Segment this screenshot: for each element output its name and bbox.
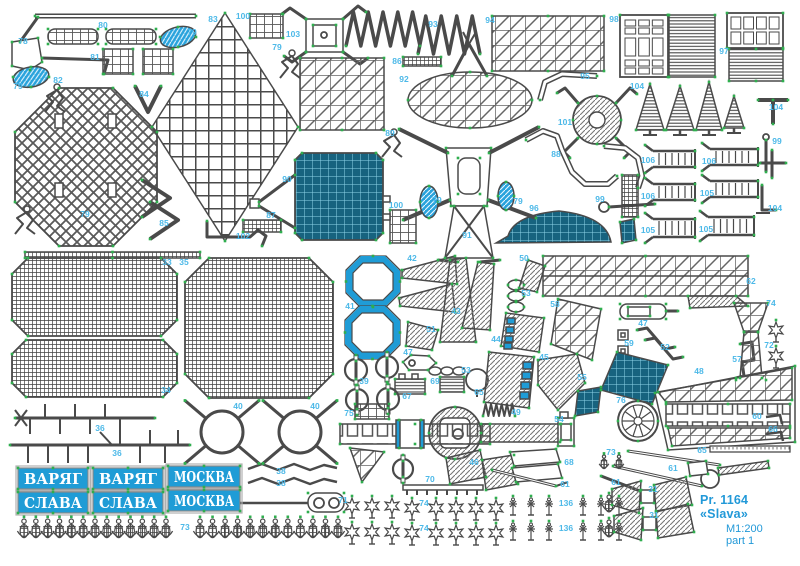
part-number-label: 53 (521, 288, 531, 298)
part-shape (295, 153, 383, 240)
attachment-dot (87, 512, 90, 515)
attachment-dot (12, 76, 15, 79)
attachment-dot (52, 512, 55, 515)
part-number-label: 86 (392, 56, 402, 66)
part-shape (108, 183, 116, 197)
attachment-dot (105, 43, 108, 46)
attachment-dot (507, 295, 510, 298)
attachment-dot (355, 354, 358, 357)
attachment-dot (772, 99, 775, 102)
attachment-dot (747, 305, 750, 308)
attachment-dot (497, 195, 500, 198)
attachment-dot (46, 516, 49, 519)
part-number-label: 46 (469, 457, 479, 467)
attachment-dot (399, 280, 402, 283)
attachment-dot (701, 142, 704, 145)
part-shape (429, 500, 443, 516)
attachment-dot (685, 476, 688, 479)
attachment-dot (718, 474, 721, 477)
attachment-dot (419, 45, 422, 48)
attachment-dot (665, 403, 668, 406)
attachment-dot (637, 187, 640, 190)
attachment-dot (305, 51, 308, 54)
attachment-dot (694, 183, 697, 186)
attachment-dot (485, 489, 488, 492)
part-number-label: 36 (112, 448, 122, 458)
attachment-dot (206, 220, 209, 223)
attachment-dot (341, 129, 344, 132)
part-number-label: 106 (702, 156, 716, 166)
attachment-dot (203, 489, 206, 492)
attachment-dot (761, 377, 764, 380)
attachment-dot (383, 57, 386, 60)
attachment-dot (224, 516, 227, 519)
attachment-dot (34, 15, 37, 18)
attachment-dot (453, 205, 456, 208)
attachment-dot (600, 389, 603, 392)
parts-sheet: ВАРЯГВАРЯГМОСКВАСЛАВАСЛАВАМОСКВА 7880818… (0, 0, 800, 566)
attachment-dot (479, 157, 482, 160)
attachment-dot (499, 259, 502, 262)
part-number-label: 136 (559, 498, 573, 508)
attachment-dot (184, 399, 187, 402)
attachment-dot (644, 205, 647, 208)
attachment-dot (584, 382, 587, 385)
part-shape (523, 362, 532, 369)
attachment-dot (177, 26, 180, 29)
part-number-label: 50 (519, 253, 529, 263)
part-shape (248, 478, 337, 484)
attachment-dot (480, 441, 483, 444)
nameplate-text: ВАРЯГ (99, 470, 158, 488)
nameplate-text: МОСКВА (174, 468, 235, 486)
attachment-dot (640, 502, 643, 505)
part-number-label: 45 (539, 352, 549, 362)
attachment-dot (344, 331, 347, 334)
attachment-dot (52, 467, 55, 470)
attachment-dot (160, 335, 163, 338)
attachment-dot (154, 417, 157, 420)
attachment-dot (336, 399, 339, 402)
attachment-dot (570, 439, 573, 442)
attachment-dot (600, 386, 603, 389)
part-shape (152, 519, 156, 523)
part-number-label: 34 (161, 385, 171, 395)
attachment-dot (239, 489, 242, 492)
attachment-dot (87, 491, 90, 494)
parts-drawing: ВАРЯГВАРЯГМОСКВАСЛАВАСЛАВАМОСКВА 7880818… (0, 0, 800, 566)
attachment-dot (674, 346, 677, 349)
part-shape (403, 485, 483, 490)
attachment-dot (591, 359, 594, 362)
part-shape (390, 210, 416, 243)
attachment-dot (644, 242, 647, 245)
part-shape (128, 519, 132, 523)
attachment-dot (127, 512, 130, 515)
attachment-dot (162, 467, 165, 470)
attachment-dot (375, 152, 378, 155)
attachment-dot (727, 425, 730, 428)
attachment-dot (657, 537, 660, 540)
attachment-dot (387, 383, 390, 386)
attachment-dot (87, 488, 90, 491)
attachment-dot (402, 482, 405, 485)
attachment-dot (127, 488, 130, 491)
attachment-dot (616, 351, 619, 354)
part-shape (250, 14, 283, 38)
attachment-dot (176, 273, 179, 276)
attachment-dot (156, 131, 159, 134)
attachment-dot (92, 467, 95, 470)
attachment-dot (444, 257, 447, 260)
attachment-dot (371, 521, 374, 524)
attachment-dot (782, 48, 785, 51)
part-shape (201, 411, 243, 453)
title-block: Pr. 1164 «Slava» M1:200 part 1 (700, 493, 796, 547)
attachment-dot (411, 497, 414, 500)
attachment-dot (619, 14, 622, 17)
attachment-dot (258, 462, 261, 465)
part-number-label: 35 (179, 257, 189, 267)
attachment-dot (199, 516, 202, 519)
part-shape (383, 214, 390, 220)
attachment-dot (699, 210, 702, 213)
attachment-dot (398, 297, 401, 300)
attachment-dot (512, 495, 515, 498)
attachment-dot (386, 351, 389, 354)
attachment-dot (461, 327, 464, 330)
attachment-dot (465, 257, 468, 260)
attachment-dot (382, 159, 385, 162)
attachment-dot (455, 522, 458, 525)
part-number-label: 94 (485, 15, 495, 25)
attachment-dot (407, 99, 410, 102)
attachment-dot (771, 149, 774, 152)
attachment-dot (714, 14, 717, 17)
attachment-dot (671, 445, 674, 448)
part-shape (505, 336, 513, 342)
attachment-dot (621, 216, 624, 219)
attachment-dot (399, 305, 402, 308)
attachment-dot (627, 450, 630, 453)
attachment-dot (177, 46, 180, 49)
part-shape (530, 523, 533, 526)
attachment-dot (649, 83, 652, 86)
attachment-dot (58, 516, 61, 519)
attachment-dot (439, 391, 442, 394)
part-number-label: 79 (13, 81, 23, 91)
attachment-dot (102, 73, 105, 76)
part-number-label: 93 (428, 19, 438, 29)
attachment-dot (280, 231, 283, 234)
part-number-label: 91 (462, 230, 472, 240)
attachment-dot (258, 201, 261, 204)
part-number-label: 75 (344, 408, 354, 418)
part-shape (688, 461, 708, 476)
part-shape (100, 432, 112, 445)
attachment-dot (757, 196, 760, 199)
attachment-dot (486, 205, 489, 208)
part-shape (557, 88, 578, 103)
attachment-dot (389, 242, 392, 245)
attachment-dot (312, 45, 315, 48)
part-shape (621, 333, 625, 337)
attachment-dot (172, 48, 175, 51)
part-number-label: 88 (551, 149, 561, 159)
attachment-dot (701, 170, 704, 173)
attachment-dot (547, 15, 550, 18)
attachment-dot (570, 423, 573, 426)
attachment-dot (544, 265, 547, 268)
part-shape (313, 25, 336, 46)
attachment-dot (184, 462, 187, 465)
attachment-dot (717, 467, 720, 470)
part-number-label: 95 (580, 71, 590, 81)
attachment-dot (555, 485, 558, 488)
kit-name: Pr. 1164 «Slava» (700, 493, 796, 521)
attachment-dot (111, 251, 114, 254)
attachment-dot (386, 375, 389, 378)
attachment-dot (324, 516, 327, 519)
part-number-label: 65 (474, 387, 484, 397)
part-shape (496, 211, 611, 243)
attachment-dot (707, 473, 710, 476)
attachment-dot (155, 43, 158, 46)
part-number-label: 81 (90, 52, 100, 62)
part-number-label: 92 (399, 74, 409, 84)
attachment-dot (343, 492, 346, 495)
attachment-dot (48, 76, 51, 79)
attachment-dot (58, 245, 61, 248)
attachment-dot (689, 475, 692, 478)
attachment-dot (573, 417, 576, 420)
part-number-label: 39 (359, 376, 369, 386)
attachment-dot (505, 312, 508, 315)
part-shape (740, 332, 762, 378)
attachment-dot (618, 452, 621, 455)
part-number-label: 40 (233, 401, 243, 411)
attachment-dot (636, 93, 639, 96)
part-number-label: 48 (694, 366, 704, 376)
attachment-dot (141, 516, 144, 519)
attachment-dot (635, 129, 638, 132)
attachment-dot (733, 302, 736, 305)
part-shape (185, 258, 333, 398)
attachment-dot (294, 174, 297, 177)
part-shape (628, 307, 650, 316)
kit-scale: M1:200 (726, 523, 796, 535)
part-shape (449, 500, 463, 516)
part-shape (582, 523, 585, 526)
attachment-dot (482, 415, 485, 418)
attachment-dot (637, 440, 640, 443)
attachment-dot (530, 520, 533, 523)
attachment-dot (495, 497, 498, 500)
attachment-dot (723, 127, 726, 130)
attachment-dot (560, 439, 563, 442)
attachment-dot (398, 419, 401, 422)
attachment-dot (739, 343, 742, 346)
part-shape (45, 519, 49, 523)
attachment-dot (367, 57, 370, 60)
part-number-label: 89 (385, 128, 395, 138)
part-shape (105, 519, 109, 523)
part-number-label: 61 (668, 463, 678, 473)
attachment-dot (616, 175, 619, 178)
attachment-dot (768, 467, 771, 470)
attachment-dot (343, 511, 346, 514)
attachment-dot (387, 407, 390, 410)
part-number-label: 68 (564, 457, 574, 467)
part-number-label: 55 (577, 372, 587, 382)
attachment-dot (47, 28, 50, 31)
attachment-dot (765, 379, 768, 382)
attachment-dot (167, 510, 170, 513)
attachment-dot (687, 295, 690, 298)
attachment-dot (644, 339, 647, 342)
part-shape (198, 519, 202, 523)
attachment-dot (262, 399, 265, 402)
attachment-dot (733, 95, 736, 98)
part-shape (108, 114, 116, 128)
part-shape (365, 524, 379, 540)
attachment-dot (388, 418, 391, 421)
part-shape (345, 524, 359, 540)
attachment-dot (398, 128, 401, 131)
part-shape (734, 303, 768, 332)
attachment-dot (495, 522, 498, 525)
part-number-label: 136 (559, 523, 573, 533)
attachment-dot (728, 80, 731, 83)
attachment-dot (283, 55, 286, 58)
attachment-dot (189, 444, 192, 447)
attachment-dot (665, 129, 668, 132)
part-number-label: 74 (419, 498, 429, 508)
attachment-dot (513, 454, 516, 457)
part-shape (589, 112, 605, 128)
attachment-dot (335, 24, 338, 27)
attachment-dot (486, 75, 489, 78)
part-number-label: 59 (624, 338, 634, 348)
part-shape (617, 455, 620, 458)
part-number-label: 67 (402, 391, 412, 401)
part-shape (12, 258, 177, 336)
attachment-dot (428, 217, 431, 220)
part-shape (429, 367, 441, 375)
attachment-dot (600, 475, 603, 478)
attachment-dot (701, 174, 704, 177)
part-shape (561, 424, 571, 440)
part-shape (481, 424, 560, 442)
attachment-dot (475, 522, 478, 525)
attachment-dot (577, 102, 580, 105)
part-number-label: 69 (430, 376, 440, 386)
attachment-dot (274, 516, 277, 519)
attachment-dot (653, 502, 656, 505)
attachment-dot (603, 70, 606, 73)
part-shape (248, 464, 337, 470)
attachment-dot (195, 15, 198, 18)
attachment-dot (701, 485, 704, 488)
attachment-dot (640, 539, 643, 542)
part-shape (607, 520, 611, 524)
attachment-dot (665, 310, 668, 313)
part-shape (510, 449, 560, 466)
attachment-dot (427, 369, 430, 372)
attachment-dot (642, 529, 645, 532)
attachment-dot (596, 75, 599, 78)
part-number-label: 47 (638, 318, 648, 328)
attachment-dot (618, 520, 621, 523)
attachment-dot (208, 257, 211, 260)
part-shape (522, 372, 531, 379)
attachment-dot (355, 378, 358, 381)
part-shape (548, 523, 551, 526)
part-number-label: 98 (609, 14, 619, 24)
part-number-label: 66 (768, 424, 778, 434)
attachment-dot (41, 61, 44, 64)
attachment-dot (488, 351, 491, 354)
attachment-dot (156, 201, 159, 204)
part-shape (508, 302, 524, 312)
attachment-dot (621, 242, 624, 245)
attachment-dot (162, 396, 165, 399)
attachment-dot (176, 382, 179, 385)
attachment-dot (600, 308, 603, 311)
attachment-dot (480, 423, 483, 426)
attachment-dot (457, 193, 460, 196)
part-shape (69, 519, 73, 523)
attachment-dot (339, 423, 342, 426)
attachment-dot (402, 56, 405, 59)
attachment-dot (447, 152, 450, 155)
attachment-dot (644, 177, 647, 180)
attachment-dot (132, 48, 135, 51)
attachment-dot (208, 397, 211, 400)
attachment-dot (312, 24, 315, 27)
attachment-dot (789, 437, 792, 440)
attachment-dot (394, 393, 397, 396)
attachment-dot (339, 443, 342, 446)
attachment-dot (401, 277, 404, 280)
attachment-dot (371, 305, 374, 308)
attachment-dot (211, 516, 214, 519)
attachment-dot (224, 12, 227, 15)
attachment-dot (236, 516, 239, 519)
part-shape (399, 420, 421, 448)
attachment-dot (435, 497, 438, 500)
attachment-dot (203, 486, 206, 489)
part-shape (282, 8, 306, 19)
attachment-dot (695, 129, 698, 132)
part-number-label: 57 (732, 354, 742, 364)
attachment-dot (27, 335, 30, 338)
attachment-dot (515, 301, 518, 304)
attachment-dot (612, 465, 615, 468)
attachment-dot (765, 171, 768, 174)
part-shape (210, 519, 214, 523)
attachment-dot (665, 318, 668, 321)
attachment-dot (636, 329, 639, 332)
attachment-dot (689, 307, 692, 310)
part-number-label: 41 (345, 301, 355, 311)
attachment-dot (668, 76, 671, 79)
part-shape (385, 524, 399, 540)
attachment-dot (642, 516, 645, 519)
attachment-dot (445, 457, 448, 460)
attachment-dot (528, 407, 531, 410)
attachment-dot (693, 531, 696, 534)
